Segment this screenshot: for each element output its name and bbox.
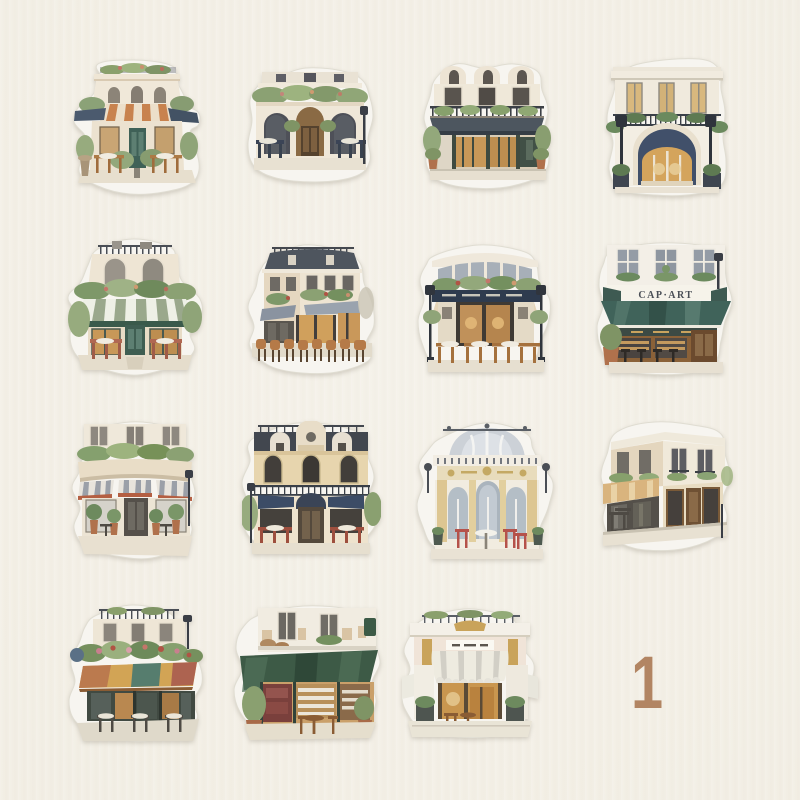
svg-text:CAP·ART: CAP·ART bbox=[638, 290, 693, 301]
